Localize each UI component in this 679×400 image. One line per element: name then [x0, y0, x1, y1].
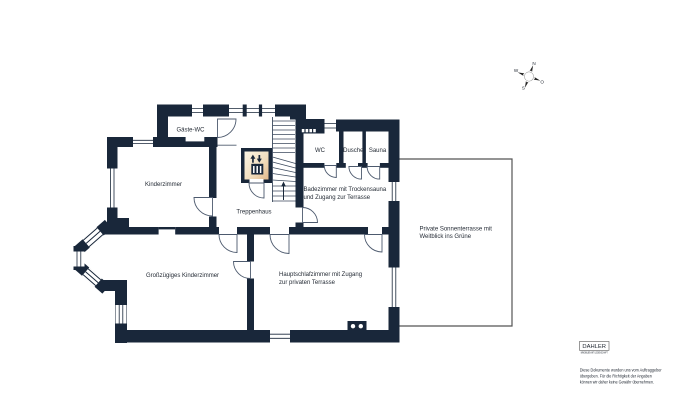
- svg-text:Großzügiges Kinderzimmer: Großzügiges Kinderzimmer: [146, 273, 219, 279]
- svg-text:IMMOBILIEN MIT LEIDENSCHAFT: IMMOBILIEN MIT LEIDENSCHAFT: [581, 352, 608, 355]
- svg-text:Diese Dokumente wurden uns vom: Diese Dokumente wurden uns vom Auftragge…: [580, 367, 662, 372]
- svg-text:und Zugang zur Terrasse: und Zugang zur Terrasse: [304, 195, 371, 201]
- svg-text:Weitblick ins Grüne: Weitblick ins Grüne: [420, 234, 472, 240]
- svg-text:O: O: [540, 79, 544, 84]
- svg-text:Sauna: Sauna: [369, 148, 387, 154]
- svg-text:W: W: [514, 68, 519, 73]
- svg-text:Badezimmer mit Trockensauna: Badezimmer mit Trockensauna: [304, 187, 387, 193]
- svg-text:übergeben. Für die Richtigkeit: übergeben. Für die Richtigkeit der Angab…: [580, 374, 652, 379]
- svg-text:Treppenhaus: Treppenhaus: [236, 209, 271, 215]
- svg-text:Dusche: Dusche: [343, 148, 364, 154]
- svg-text:zur privaten Terrasse: zur privaten Terrasse: [279, 280, 336, 286]
- svg-text:Kinderzimmer: Kinderzimmer: [145, 182, 182, 188]
- svg-text:N: N: [532, 61, 535, 66]
- svg-text:DAHLER: DAHLER: [582, 344, 606, 350]
- svg-text:WC: WC: [315, 148, 326, 154]
- svg-text:Private Sonnenterrasse mit: Private Sonnenterrasse mit: [420, 226, 493, 232]
- svg-text:S: S: [522, 86, 525, 91]
- svg-text:Hauptschlafzimmer mit Zugang: Hauptschlafzimmer mit Zugang: [279, 272, 362, 278]
- svg-text:Gäste-WC: Gäste-WC: [176, 127, 205, 133]
- svg-text:können wir daher keine Gewähr: können wir daher keine Gewähr übernehmen…: [580, 380, 654, 385]
